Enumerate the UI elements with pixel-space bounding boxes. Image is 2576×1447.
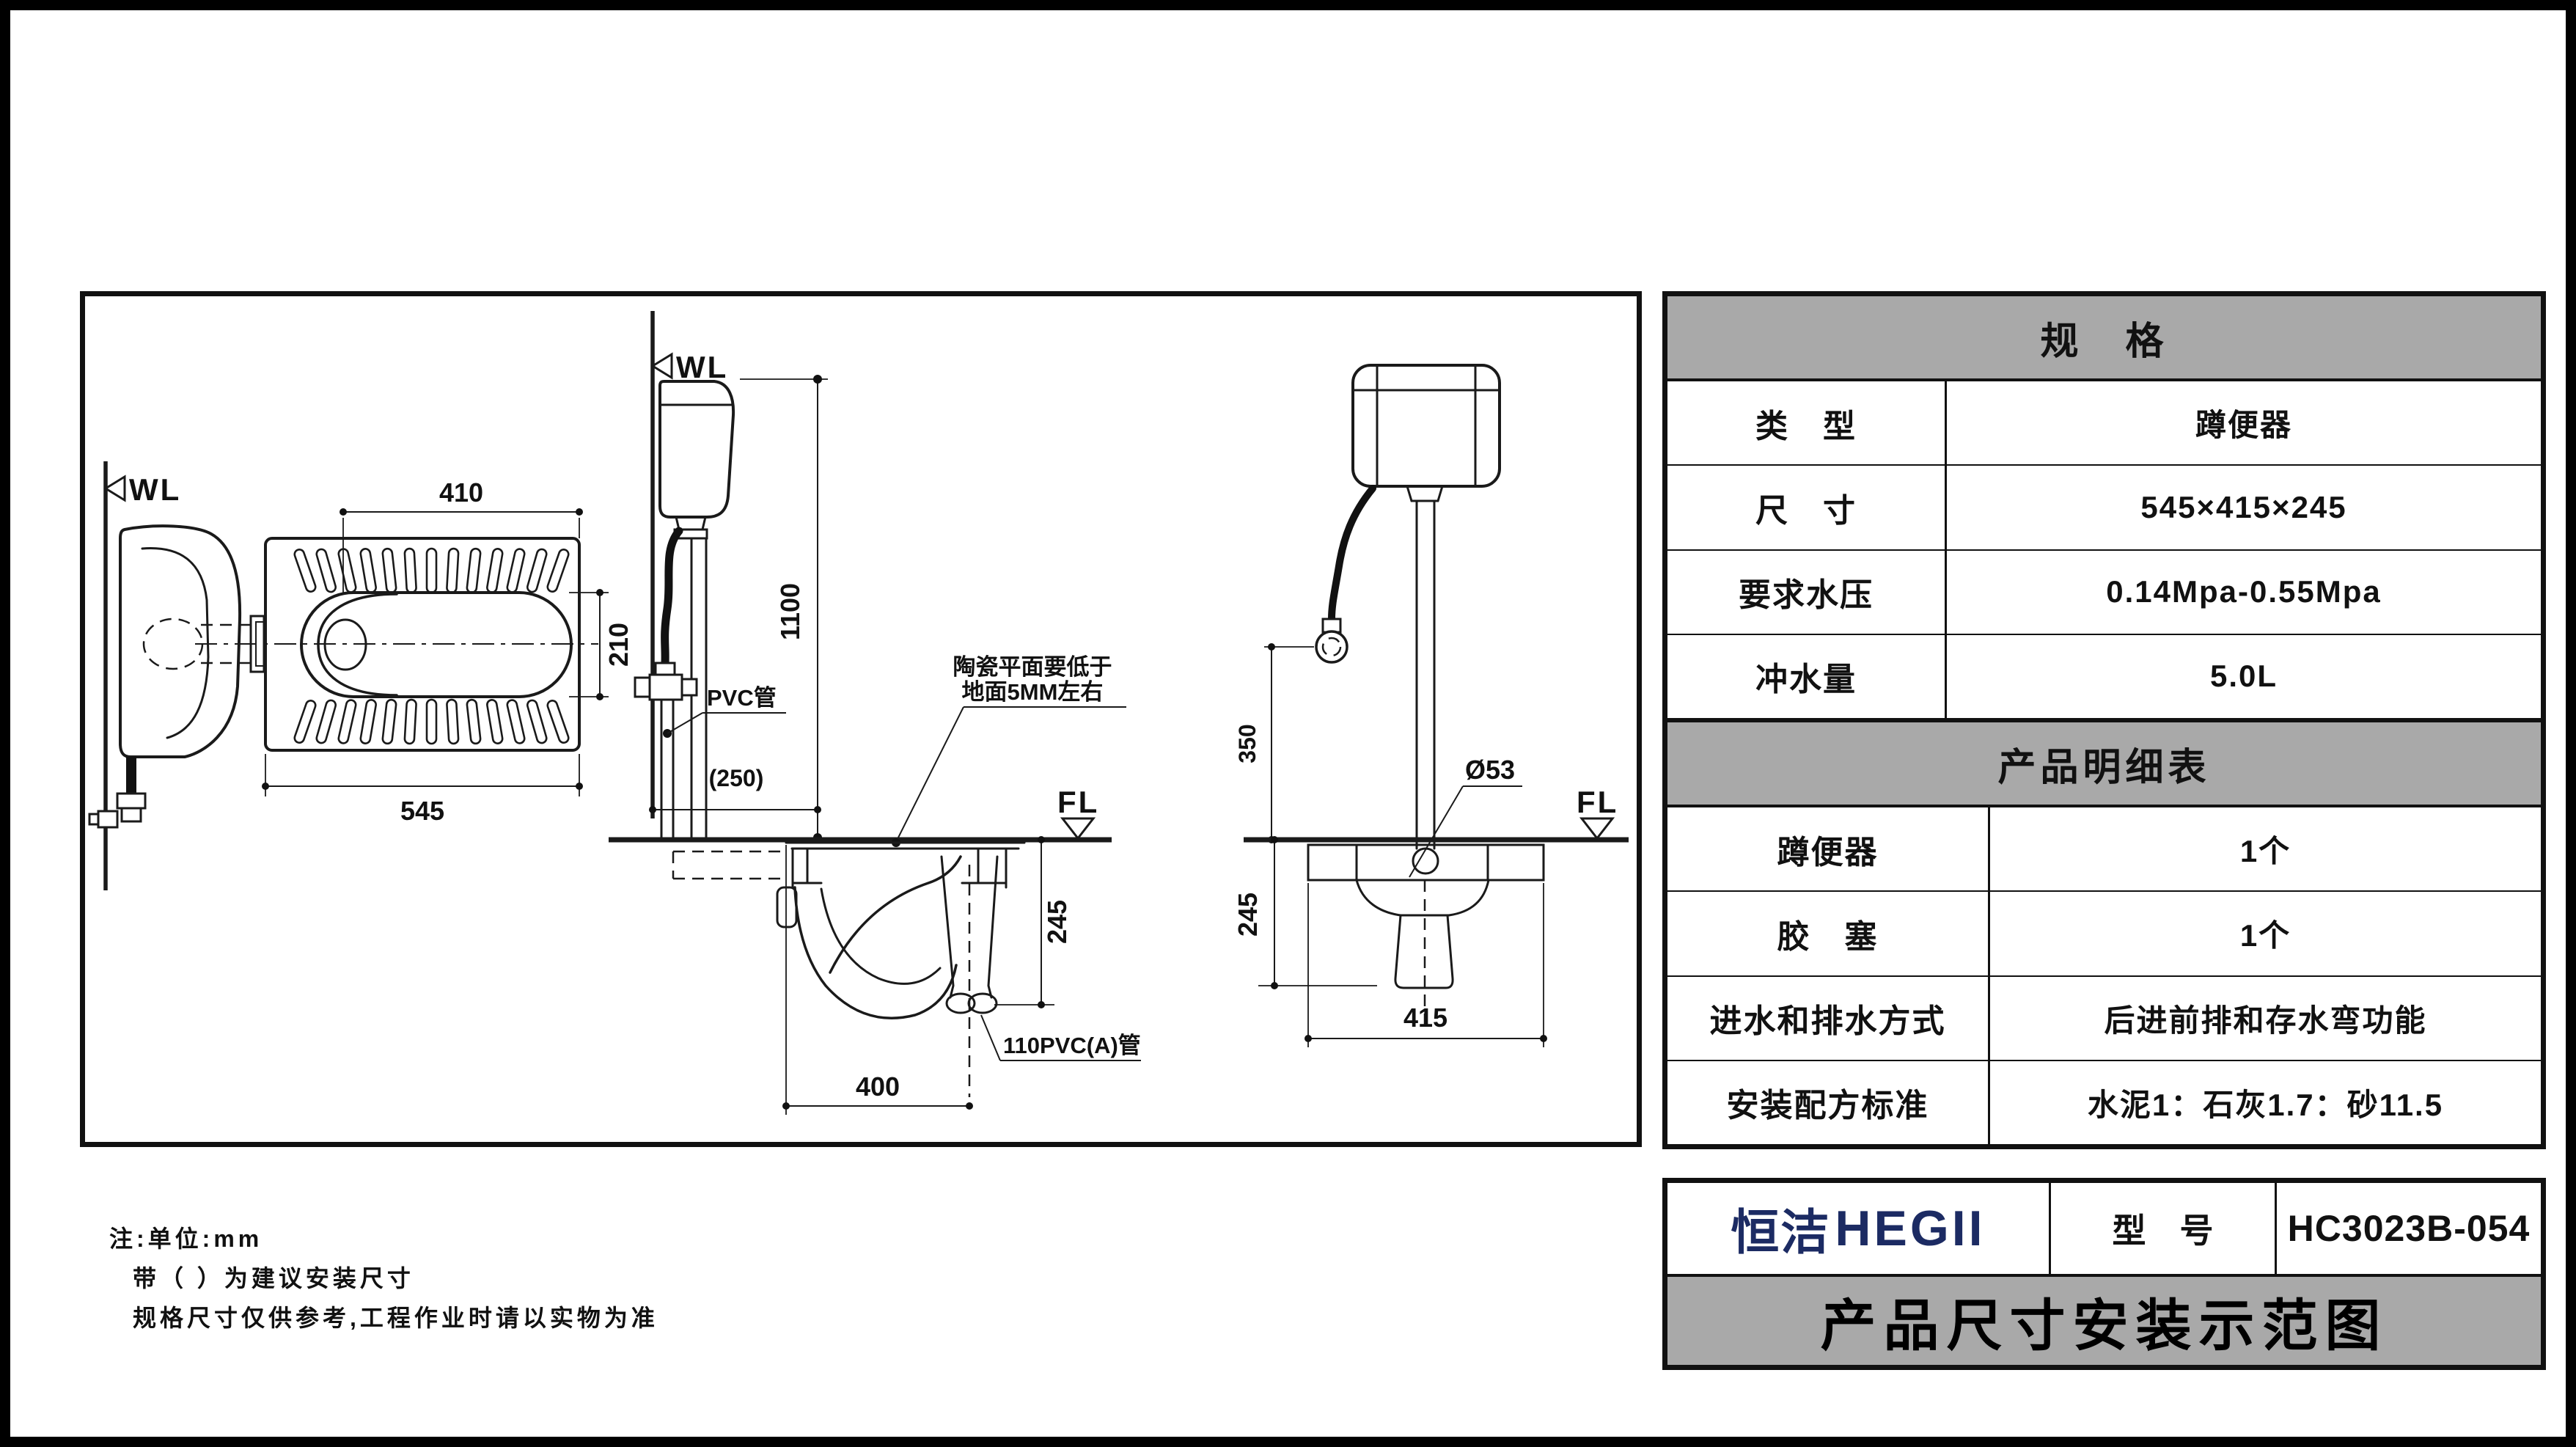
row-value: 0.14Mpa-0.55Mpa (1947, 551, 2541, 634)
dim-245-front: 245 (1233, 836, 1377, 989)
wall-level-icon (653, 354, 672, 378)
row-value: 后进前排和存水弯功能 (1990, 977, 2541, 1060)
row-label: 冲水量 (1667, 635, 1947, 718)
brand-logo-cn: 恒洁 (1731, 1193, 1830, 1264)
svg-text:地面5MM左右: 地面5MM左右 (962, 679, 1104, 705)
svg-text:545: 545 (400, 796, 444, 826)
plan-view: WL (89, 461, 634, 890)
table-row: 安装配方标准 水泥1：石灰1.7：砂11.5 (1667, 1061, 2541, 1144)
svg-text:FL: FL (1577, 785, 1618, 819)
row-value: 545×415×245 (1947, 466, 2541, 549)
installation-sheet: WL (0, 0, 2576, 1447)
svg-text:400: 400 (856, 1071, 900, 1102)
dim-350: 350 (1234, 643, 1314, 843)
dim-410: 410 (340, 477, 583, 593)
floor-level-marker: FL (1057, 785, 1099, 838)
row-label: 安装配方标准 (1667, 1061, 1990, 1144)
svg-text:410: 410 (439, 477, 483, 508)
pan-ribs-bottom (293, 699, 570, 744)
table-row: 蹲便器 1个 (1667, 807, 2541, 892)
trap-outer (795, 887, 956, 1018)
brand-logo: 恒洁 HEGII (1667, 1183, 2051, 1274)
dia-53-callout: Ø53 (1409, 755, 1522, 877)
inlet-hose (665, 531, 679, 663)
pan-ribs-top (293, 548, 570, 593)
model-label: 型 号 (2051, 1183, 2277, 1274)
trap-inner (821, 889, 940, 983)
pan-section (673, 843, 1024, 1097)
cistern-front (1353, 365, 1500, 501)
cistern-side (120, 526, 240, 757)
inlet-hose (1332, 488, 1373, 619)
row-value: 水泥1：石灰1.7：砂11.5 (1990, 1061, 2541, 1144)
supply-valve (89, 757, 145, 827)
row-label: 蹲便器 (1667, 807, 1990, 890)
wall-level-icon (106, 477, 125, 500)
svg-text:415: 415 (1403, 1003, 1447, 1033)
sheet-title: 产品尺寸安装示范图 (1667, 1277, 2541, 1365)
svg-text:245: 245 (1233, 893, 1263, 937)
brand-logo-en: HEGII (1835, 1200, 1985, 1257)
table-row: 类 型 蹲便器 (1667, 381, 2541, 466)
svg-text:(250): (250) (709, 765, 764, 791)
row-value: 5.0L (1947, 635, 2541, 718)
svg-text:1100: 1100 (775, 583, 805, 640)
svg-text:350: 350 (1234, 724, 1261, 763)
row-value: 1个 (1990, 892, 2541, 975)
angle-valve (635, 663, 697, 700)
table-row: 进水和排水方式 后进前排和存水弯功能 (1667, 977, 2541, 1061)
drawing-frame: WL (80, 291, 1642, 1147)
floor-level-marker: FL (1577, 785, 1618, 838)
cistern-side-elevation (660, 381, 733, 538)
model-number: HC3023B-054 (2277, 1183, 2541, 1274)
detail-table-header: 产品明细表 (1667, 719, 2541, 807)
outlet-pipe-callout: 110PVC(A)管 (981, 1015, 1141, 1060)
note-line: 注:单位:mm (109, 1219, 658, 1259)
row-label: 要求水压 (1667, 551, 1947, 634)
wl-label: WL (129, 472, 181, 507)
row-value: 蹲便器 (1947, 381, 2541, 464)
table-row: 胶 塞 1个 (1667, 892, 2541, 976)
technical-drawing: WL (85, 296, 1637, 1142)
dim-545: 545 (262, 754, 583, 826)
svg-text:陶瓷平面要低于: 陶瓷平面要低于 (953, 654, 1112, 680)
inlet-fitting (1316, 619, 1347, 662)
table-row: 尺 寸 545×415×245 (1667, 466, 2541, 550)
row-label: 进水和排水方式 (1667, 977, 1990, 1060)
svg-text:Ø53: Ø53 (1465, 755, 1515, 785)
inlet-spud-inner (256, 622, 264, 666)
dim-415: 415 (1304, 883, 1547, 1047)
table-row: 冲水量 5.0L (1667, 635, 2541, 719)
spec-table-header: 规 格 (1667, 296, 2541, 381)
row-label: 类 型 (1667, 381, 1947, 464)
note-line: 规格尺寸仅供参考,工程作业时请以实物为准 (109, 1298, 658, 1338)
table-row: 要求水压 0.14Mpa-0.55Mpa (1667, 551, 2541, 635)
svg-text:245: 245 (1042, 900, 1072, 944)
title-block: 恒洁 HEGII 型 号 HC3023B-054 产品尺寸安装示范图 (1662, 1178, 2546, 1370)
front-view: 350 FL (1233, 365, 1629, 1047)
rubber-plug (777, 887, 796, 927)
row-label: 尺 寸 (1667, 466, 1947, 549)
svg-text:210: 210 (603, 623, 634, 667)
svg-text:110PVC(A)管: 110PVC(A)管 (1003, 1033, 1141, 1058)
drawing-notes: 注:单位:mm 带（ ）为建议安装尺寸 规格尺寸仅供参考,工程作业时请以实物为准 (109, 1219, 658, 1338)
note-line: 带（ ）为建议安装尺寸 (109, 1259, 658, 1298)
side-section-view: WL (609, 311, 1141, 1115)
spec-table: 规 格 类 型 蹲便器 尺 寸 545×415×245 要求水压 0.14Mpa… (1662, 291, 2546, 1149)
wl-label: WL (676, 350, 728, 384)
svg-text:FL: FL (1057, 785, 1099, 819)
svg-text:PVC管: PVC管 (707, 685, 777, 711)
dim-250: (250) (649, 765, 821, 813)
row-label: 胶 塞 (1667, 892, 1990, 975)
row-value: 1个 (1990, 807, 2541, 890)
